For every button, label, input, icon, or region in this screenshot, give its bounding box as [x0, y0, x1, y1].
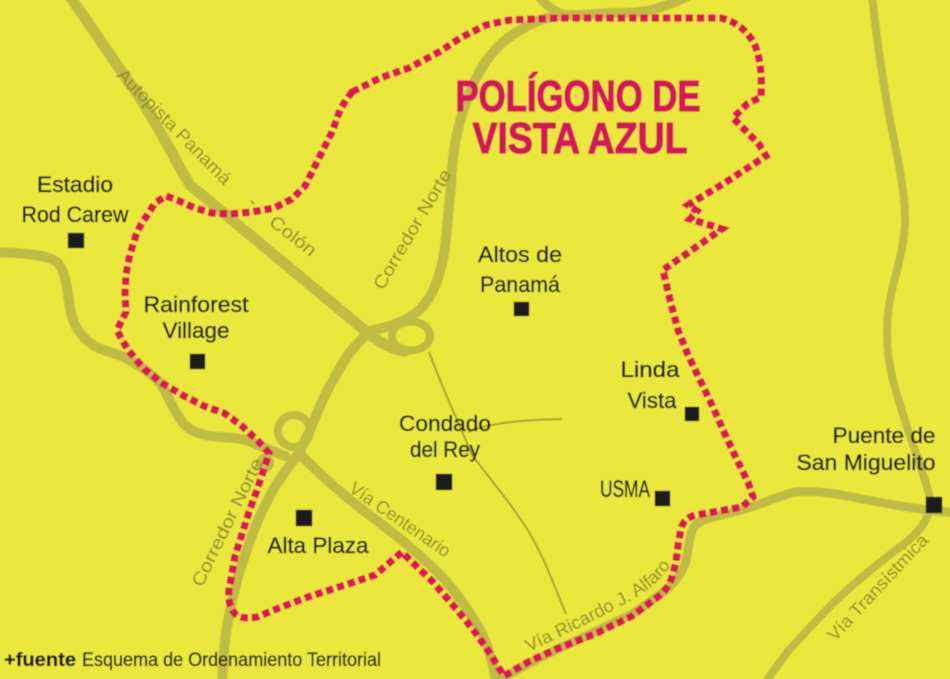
svg-text:Village: Village: [163, 318, 230, 343]
svg-text:Altos de: Altos de: [478, 242, 562, 267]
svg-text:VISTA AZUL: VISTA AZUL: [473, 114, 688, 163]
svg-text:Alta Plaza: Alta Plaza: [268, 533, 370, 558]
svg-text:del Rey: del Rey: [410, 437, 480, 462]
svg-text:Panamá: Panamá: [480, 272, 561, 297]
svg-text:Vista: Vista: [628, 388, 678, 413]
svg-text:Rainforest: Rainforest: [144, 292, 249, 317]
svg-text:Condado: Condado: [399, 411, 491, 436]
svg-text:San Miguelito: San Miguelito: [797, 450, 936, 475]
svg-text:+fuenteEsquema de Ordenamiento: +fuenteEsquema de Ordenamiento Territori…: [4, 650, 381, 671]
svg-text:Rod Carew: Rod Carew: [22, 202, 129, 227]
svg-text:Puente de: Puente de: [833, 423, 936, 448]
svg-text:USMA: USMA: [600, 476, 650, 503]
svg-text:Linda: Linda: [621, 357, 681, 382]
svg-text:Estadio: Estadio: [37, 172, 113, 197]
